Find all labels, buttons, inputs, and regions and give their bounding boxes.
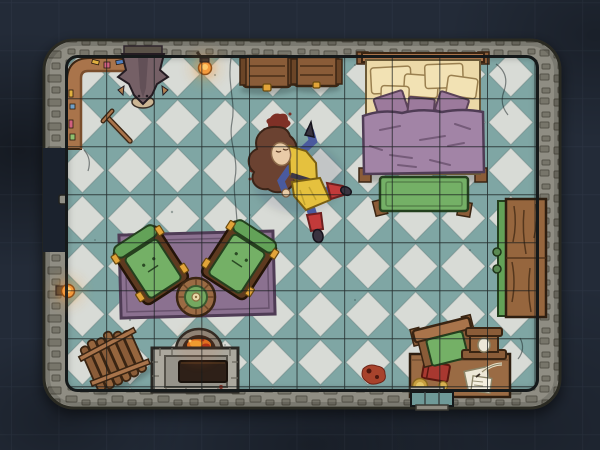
grid-overlay [67,57,538,391]
room-map [43,40,577,410]
battle-map-canvas [0,0,600,450]
battle-map [0,0,600,450]
